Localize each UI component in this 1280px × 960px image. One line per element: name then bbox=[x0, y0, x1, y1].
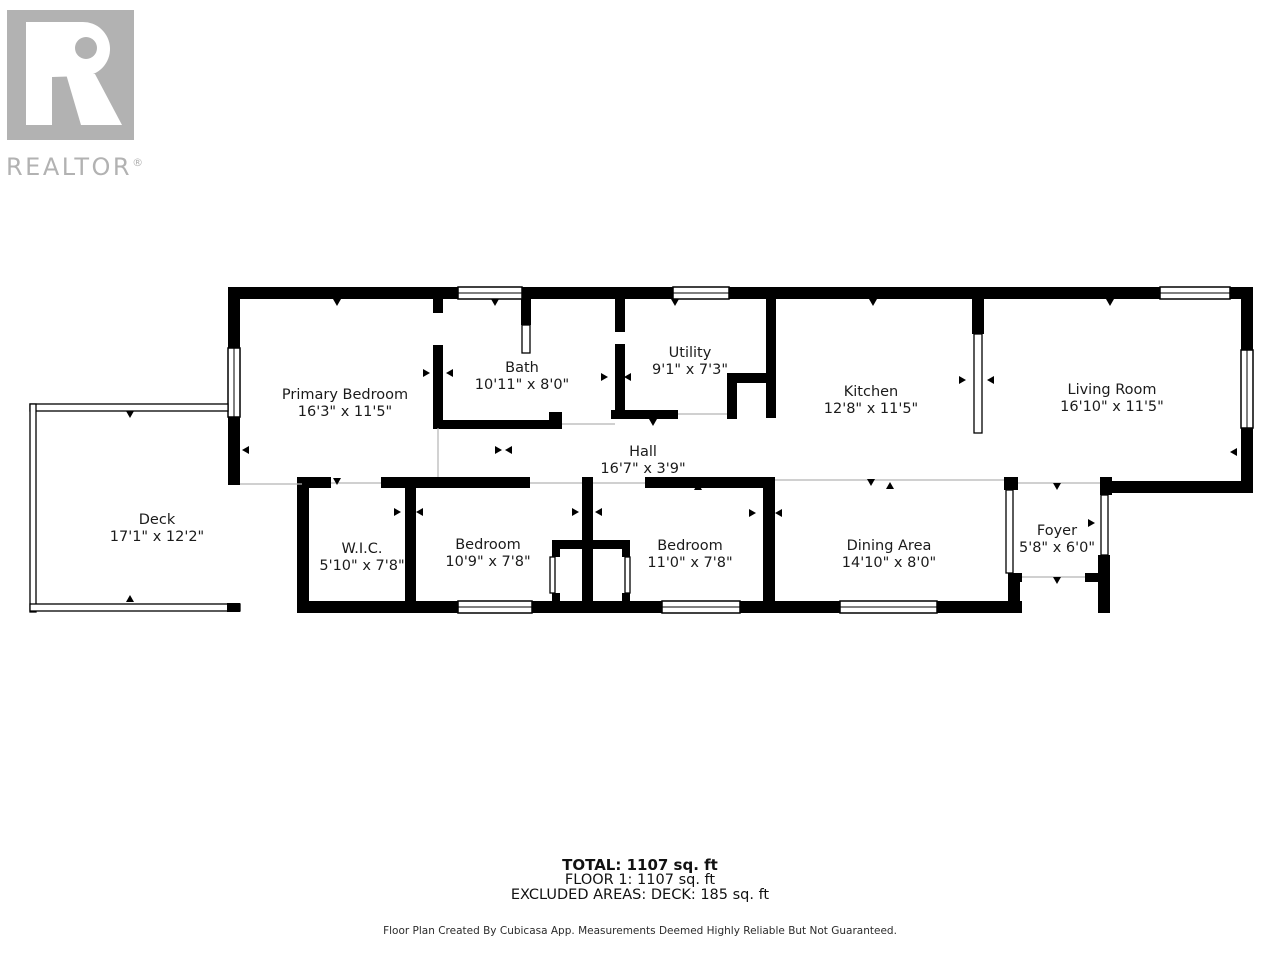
room-label-wic: W.I.C. bbox=[342, 541, 383, 557]
room-dims-deck: 17'1" x 12'2" bbox=[110, 529, 204, 545]
excluded-area-text: EXCLUDED AREAS: DECK: 185 sq. ft bbox=[0, 887, 1280, 903]
room-label-bath: Bath bbox=[505, 360, 539, 376]
floor-plan-page: REALTOR® bbox=[0, 0, 1280, 960]
room-dims-bath: 10'11" x 8'0" bbox=[475, 377, 569, 393]
room-label-bedroom-1: Bedroom bbox=[455, 537, 521, 553]
room-dims-bedroom-2: 11'0" x 7'8" bbox=[647, 555, 732, 571]
room-dims-dining-area: 14'10" x 8'0" bbox=[842, 555, 936, 571]
room-label-bedroom-2: Bedroom bbox=[657, 538, 723, 554]
room-label-kitchen: Kitchen bbox=[844, 384, 899, 400]
disclaimer-text: Floor Plan Created By Cubicasa App. Meas… bbox=[0, 925, 1280, 937]
room-label-foyer: Foyer bbox=[1037, 523, 1077, 539]
room-label-primary-bedroom: Primary Bedroom bbox=[282, 387, 408, 403]
room-dims-living-room: 16'10" x 11'5" bbox=[1060, 399, 1164, 415]
room-label-dining-area: Dining Area bbox=[847, 538, 932, 554]
floor-area-text: FLOOR 1: 1107 sq. ft bbox=[0, 872, 1280, 888]
room-label-living-room: Living Room bbox=[1067, 382, 1156, 398]
room-label-deck: Deck bbox=[139, 512, 176, 528]
room-dims-foyer: 5'8" x 6'0" bbox=[1019, 540, 1095, 556]
room-dims-hall: 16'7" x 3'9" bbox=[600, 461, 685, 477]
room-label-utility: Utility bbox=[669, 345, 712, 361]
room-dims-kitchen: 12'8" x 11'5" bbox=[824, 401, 918, 417]
room-dims-bedroom-1: 10'9" x 7'8" bbox=[445, 554, 530, 570]
room-dims-utility: 9'1" x 7'3" bbox=[652, 362, 728, 378]
floor-plan-drawing: Primary Bedroom 16'3" x 11'5" Bath 10'11… bbox=[0, 0, 1280, 960]
room-label-hall: Hall bbox=[629, 444, 657, 460]
deck-outline bbox=[30, 404, 240, 612]
room-dims-wic: 5'10" x 7'8" bbox=[319, 558, 404, 574]
room-dims-primary-bedroom: 16'3" x 11'5" bbox=[298, 404, 392, 420]
